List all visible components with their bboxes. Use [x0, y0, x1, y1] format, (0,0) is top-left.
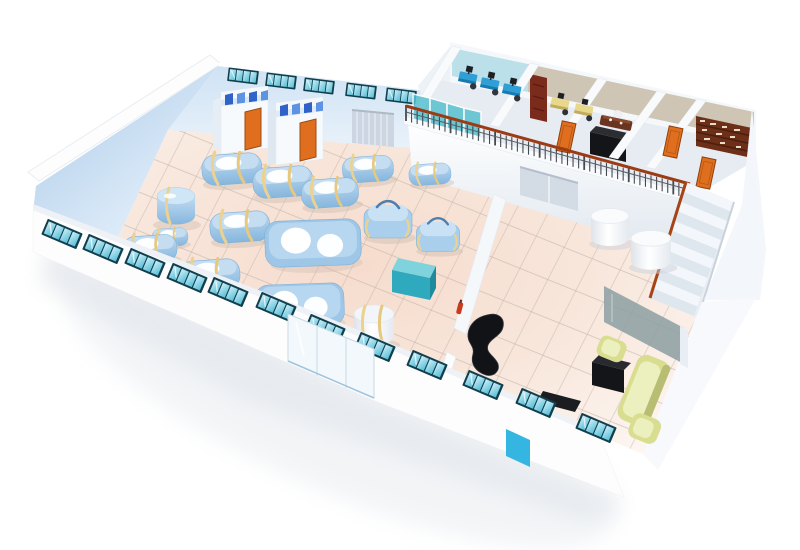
floor-plan-render	[0, 0, 800, 550]
cubicle-side-wall	[268, 108, 276, 166]
white-floor-cylinder	[629, 230, 677, 274]
machine-vertical-tank	[153, 188, 201, 232]
partition-pillar	[680, 326, 688, 368]
cubicle-door	[245, 108, 261, 150]
cubicle-side-wall	[213, 97, 221, 151]
machine-vat-slab	[264, 218, 363, 274]
yellow-office-shelf	[530, 74, 547, 122]
white-floor-cylinder	[589, 209, 635, 251]
cubicle-door	[300, 119, 316, 161]
back-wall-sliding-door	[352, 110, 394, 147]
isometric-factory-scene	[0, 0, 800, 550]
